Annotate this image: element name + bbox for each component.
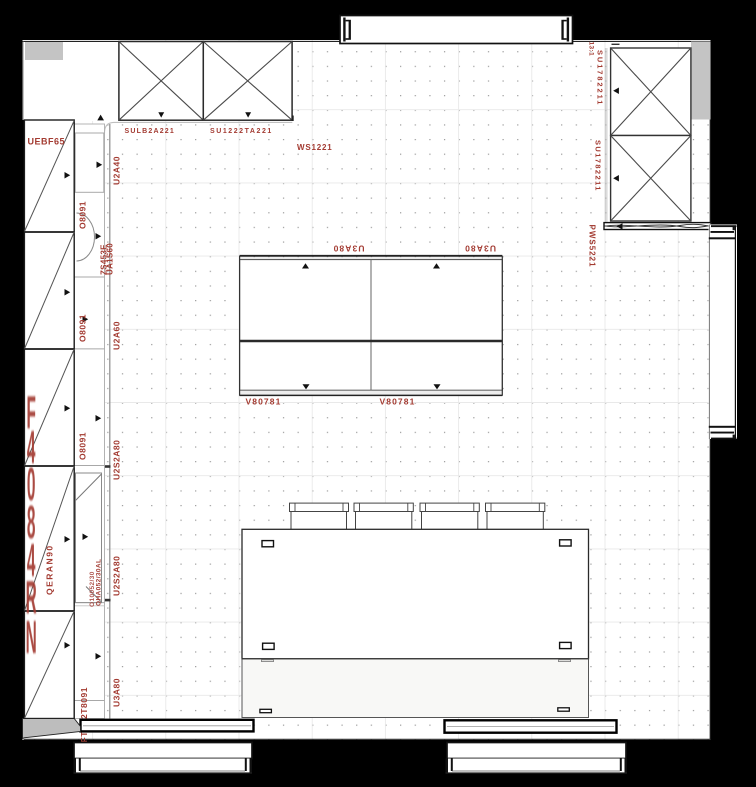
- svg-text:WS1221: WS1221: [297, 143, 332, 152]
- svg-text:V80781: V80781: [380, 397, 416, 407]
- svg-text:O8091: O8091: [78, 314, 88, 342]
- svg-text:FT2D2T8091: FT2D2T8091: [79, 687, 89, 743]
- svg-text:U3A80: U3A80: [112, 678, 122, 707]
- svg-text:OHA052/30AL: OHA052/30AL: [96, 559, 103, 606]
- svg-text:13:1: 13:1: [588, 42, 595, 57]
- svg-text:SU1782211: SU1782211: [594, 140, 603, 192]
- svg-text:PWS5221: PWS5221: [588, 225, 597, 268]
- svg-text:UEBF65: UEBF65: [28, 137, 66, 147]
- svg-text:U2A60: U2A60: [112, 321, 122, 350]
- svg-text:O10052/30: O10052/30: [89, 571, 96, 607]
- svg-text:N: N: [26, 613, 37, 664]
- svg-text:O8091: O8091: [78, 432, 88, 460]
- svg-text:SULB2A221: SULB2A221: [125, 128, 175, 135]
- svg-text:V80781: V80781: [246, 397, 282, 407]
- svg-text:U2A40: U2A40: [112, 156, 122, 185]
- svg-text:U3A80: U3A80: [333, 244, 365, 254]
- svg-text:O8091: O8091: [78, 201, 88, 229]
- svg-text:SU1222TA221: SU1222TA221: [210, 128, 273, 135]
- svg-text:SU1782211: SU1782211: [596, 50, 605, 106]
- svg-text:UA1S60: UA1S60: [106, 243, 115, 275]
- svg-text:QERAN90: QERAN90: [45, 544, 55, 595]
- svg-text:U2S2A80: U2S2A80: [112, 556, 122, 596]
- svg-text:U3A80: U3A80: [464, 244, 496, 254]
- svg-text:U2S2A80: U2S2A80: [112, 440, 122, 480]
